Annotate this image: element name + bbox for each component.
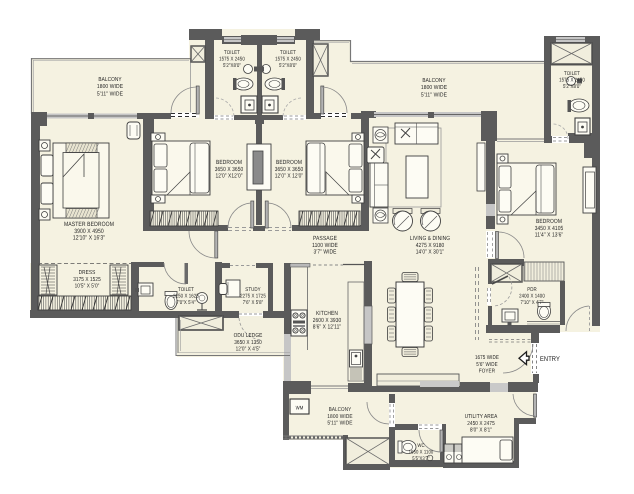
- svg-text:LIVING & DINING: LIVING & DINING: [410, 235, 450, 242]
- svg-text:1800 WIDE: 1800 WIDE: [327, 414, 353, 420]
- svg-text:8'0" X 8'1": 8'0" X 8'1": [470, 427, 492, 434]
- svg-text:5'11" WIDE: 5'11" WIDE: [97, 91, 123, 97]
- svg-text:BALCONY: BALCONY: [329, 407, 352, 413]
- svg-text:1575 X 2450: 1575 X 2450: [275, 57, 301, 63]
- svg-text:7'6" X 5'8": 7'6" X 5'8": [243, 300, 264, 306]
- svg-text:TOILET: TOILET: [178, 287, 194, 293]
- svg-text:12'0" X 4'5": 12'0" X 4'5": [236, 346, 261, 353]
- svg-text:3'7" WIDE: 3'7" WIDE: [314, 249, 337, 256]
- svg-text:1575 X 2450: 1575 X 2450: [219, 57, 245, 63]
- svg-text:14'0" X 30'1": 14'0" X 30'1": [416, 249, 445, 256]
- svg-text:WC: WC: [417, 443, 424, 449]
- svg-text:WM: WM: [296, 406, 304, 412]
- svg-text:5'2"X8'0": 5'2"X8'0": [279, 63, 297, 69]
- svg-text:5'11" WIDE: 5'11" WIDE: [421, 92, 447, 98]
- svg-text:4275 X 9180: 4275 X 9180: [416, 242, 445, 249]
- svg-text:2600 X 3930: 2600 X 3930: [313, 317, 342, 324]
- svg-text:2275 X 1725: 2275 X 1725: [240, 294, 266, 300]
- svg-text:12'0" X 12'0": 12'0" X 12'0": [275, 173, 304, 180]
- svg-text:3650 X 3650: 3650 X 3650: [215, 166, 244, 173]
- svg-text:2450 X 2475: 2450 X 2475: [467, 420, 495, 427]
- svg-text:5'11" WIDE: 5'11" WIDE: [327, 421, 352, 427]
- svg-text:5'6" WIDE: 5'6" WIDE: [476, 362, 498, 368]
- svg-text:3650 X 3650: 3650 X 3650: [275, 166, 304, 173]
- svg-text:PDR: PDR: [527, 287, 537, 293]
- svg-text:TOILET: TOILET: [224, 50, 240, 56]
- svg-text:11'4" X 13'6": 11'4" X 13'6": [535, 232, 564, 239]
- svg-text:BALCONY: BALCONY: [98, 76, 121, 83]
- svg-text:TOILET: TOILET: [280, 50, 296, 56]
- svg-text:1800 WIDE: 1800 WIDE: [421, 84, 447, 91]
- svg-text:BEDROOM: BEDROOM: [536, 218, 562, 225]
- svg-text:12'0" X12'0": 12'0" X12'0": [215, 173, 242, 180]
- svg-text:2150 X 1625: 2150 X 1625: [173, 294, 199, 300]
- svg-text:1675 WIDE: 1675 WIDE: [475, 355, 499, 361]
- svg-text:BEDROOM: BEDROOM: [216, 159, 242, 166]
- svg-text:BALCONY: BALCONY: [422, 77, 445, 84]
- svg-text:1100 WIDE: 1100 WIDE: [312, 242, 338, 249]
- svg-text:FOYER: FOYER: [479, 369, 495, 375]
- svg-text:7'10" X 4'7": 7'10" X 4'7": [520, 300, 543, 306]
- svg-text:2400 X 1400: 2400 X 1400: [519, 294, 545, 300]
- svg-text:TOILET: TOILET: [564, 71, 580, 77]
- svg-text:1800 WIDE: 1800 WIDE: [97, 83, 123, 90]
- svg-text:3450 X 4105: 3450 X 4105: [535, 225, 564, 232]
- svg-text:10'5" X 5'0": 10'5" X 5'0": [75, 283, 100, 290]
- svg-text:PASSAGE: PASSAGE: [313, 235, 337, 242]
- svg-text:BEDROOM: BEDROOM: [276, 159, 302, 166]
- svg-text:KITCHEN: KITCHEN: [316, 310, 338, 317]
- svg-text:1650 X 1100: 1650 X 1100: [409, 449, 434, 455]
- svg-text:5'2"X8'0": 5'2"X8'0": [563, 84, 581, 90]
- svg-text:UTILITY AREA: UTILITY AREA: [465, 414, 498, 420]
- svg-text:DRESS: DRESS: [79, 269, 96, 276]
- svg-text:3175 X 1525: 3175 X 1525: [73, 276, 101, 283]
- svg-text:8'6" X 12'11": 8'6" X 12'11": [313, 324, 342, 331]
- svg-text:3650 X 1350: 3650 X 1350: [234, 339, 262, 346]
- svg-text:1575 X 2450: 1575 X 2450: [559, 78, 585, 84]
- svg-text:12'10" X 16'3": 12'10" X 16'3": [73, 235, 105, 242]
- svg-text:7'0"X 5'4": 7'0"X 5'4": [176, 300, 195, 306]
- svg-text:5'2"X8'0": 5'2"X8'0": [223, 63, 241, 69]
- svg-text:5'5"X3'7": 5'5"X3'7": [412, 456, 429, 462]
- svg-text:ODU LEDGE: ODU LEDGE: [234, 332, 263, 339]
- svg-text:STUDY: STUDY: [245, 287, 261, 293]
- svg-text:ENTRY: ENTRY: [540, 356, 560, 363]
